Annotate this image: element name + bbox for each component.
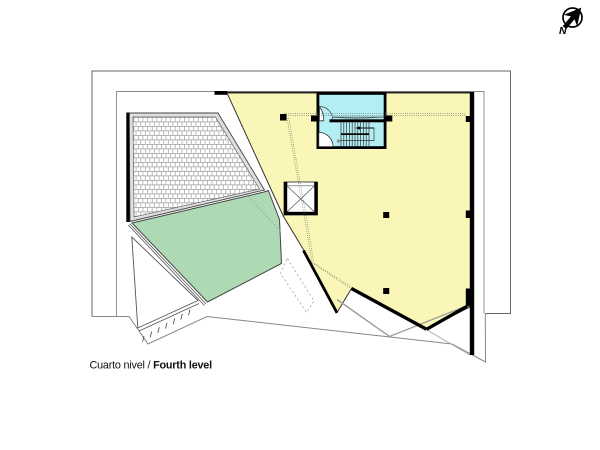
svg-text:Cuarto nivel / Fourth level: Cuarto nivel / Fourth level (90, 360, 213, 372)
svg-text:N: N (559, 25, 567, 37)
